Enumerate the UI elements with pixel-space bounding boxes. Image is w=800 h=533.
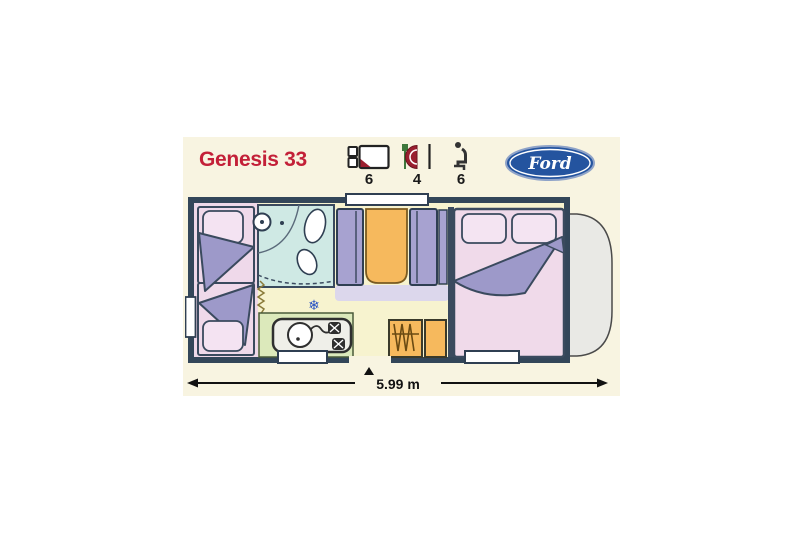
dining-icon xyxy=(401,142,433,171)
sink xyxy=(288,323,312,347)
bed-icon xyxy=(347,143,391,171)
dinette-seat xyxy=(337,209,363,285)
floorplan: ❄ xyxy=(185,193,617,393)
travel-seats-count: 6 xyxy=(457,172,465,188)
pillow xyxy=(203,321,243,351)
window xyxy=(278,351,327,363)
cab-nose xyxy=(563,214,612,356)
double-bed-section xyxy=(448,207,564,357)
dinette-places-count: 4 xyxy=(413,172,421,188)
window xyxy=(346,194,428,205)
model-title: Genesis 33 xyxy=(199,148,307,172)
window xyxy=(186,297,196,337)
wardrobe xyxy=(389,320,446,357)
ford-logo: Ford xyxy=(504,143,596,183)
dimension-line: 5.99 m xyxy=(187,376,608,392)
spec-berths: 6 xyxy=(347,143,391,188)
pillow xyxy=(512,214,556,243)
pillow xyxy=(462,214,506,243)
twin-beds-section xyxy=(194,203,258,357)
cabinet xyxy=(425,320,446,357)
ford-logo-text: Ford xyxy=(527,154,571,174)
page: Genesis 33 6 4 xyxy=(0,0,800,533)
dinette xyxy=(335,209,449,301)
entrance-door-opening xyxy=(349,356,391,365)
entrance-marker xyxy=(364,367,374,375)
spec-dinette-places: 4 xyxy=(401,142,433,188)
fridge-snowflake-icon: ❄ xyxy=(308,297,320,313)
spec-travel-seats: 6 xyxy=(450,141,472,188)
window xyxy=(465,351,519,363)
length-label: 5.99 m xyxy=(376,376,420,392)
brochure-panel: Genesis 33 6 4 xyxy=(183,137,620,396)
berths-count: 6 xyxy=(365,172,373,188)
dinette-table xyxy=(366,209,407,283)
dinette-seat xyxy=(410,209,437,285)
seat-icon xyxy=(450,141,472,171)
bathroom xyxy=(254,205,335,287)
